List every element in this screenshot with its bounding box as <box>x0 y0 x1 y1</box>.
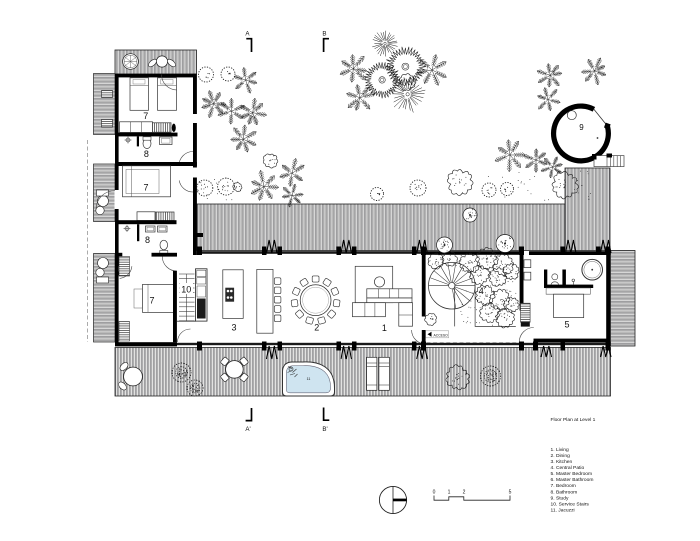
svg-text:2: 2 <box>314 322 319 332</box>
svg-text:A': A' <box>245 426 250 433</box>
svg-text:B': B' <box>322 426 327 433</box>
svg-text:1: 1 <box>448 490 451 496</box>
svg-text:0: 0 <box>433 490 436 496</box>
svg-text:8: 8 <box>144 149 149 159</box>
svg-text:8. Bathroom: 8. Bathroom <box>551 489 578 495</box>
svg-text:8: 8 <box>145 235 150 245</box>
svg-text:5: 5 <box>509 490 512 496</box>
svg-text:3: 3 <box>231 322 236 332</box>
svg-text:ACCESO: ACCESO <box>434 333 449 337</box>
svg-text:1. Living: 1. Living <box>551 447 569 453</box>
svg-text:7: 7 <box>149 295 154 305</box>
svg-text:11. Jacuzzi: 11. Jacuzzi <box>551 508 575 514</box>
svg-text:10. Service Stairs: 10. Service Stairs <box>551 501 590 507</box>
svg-text:2: 2 <box>463 490 466 496</box>
svg-text:1: 1 <box>382 323 387 333</box>
svg-text:2. Dining: 2. Dining <box>551 453 571 459</box>
svg-text:9. Study: 9. Study <box>551 495 569 501</box>
svg-text:Floor Plan at Level 1: Floor Plan at Level 1 <box>551 417 596 423</box>
svg-text:6. Master Bathroom: 6. Master Bathroom <box>551 477 594 483</box>
svg-text:5: 5 <box>564 320 569 330</box>
svg-text:10: 10 <box>181 285 191 295</box>
svg-text:4. Central Patio: 4. Central Patio <box>551 465 585 471</box>
svg-text:7. Bedroom: 7. Bedroom <box>551 483 576 489</box>
svg-text:9: 9 <box>579 123 584 132</box>
svg-text:11: 11 <box>307 377 311 381</box>
svg-text:5. Master Bedroom: 5. Master Bedroom <box>551 471 593 477</box>
svg-text:7: 7 <box>143 111 148 121</box>
svg-text:3. Kitchen: 3. Kitchen <box>551 459 573 465</box>
svg-text:B: B <box>322 31 326 38</box>
svg-text:7: 7 <box>143 183 148 193</box>
